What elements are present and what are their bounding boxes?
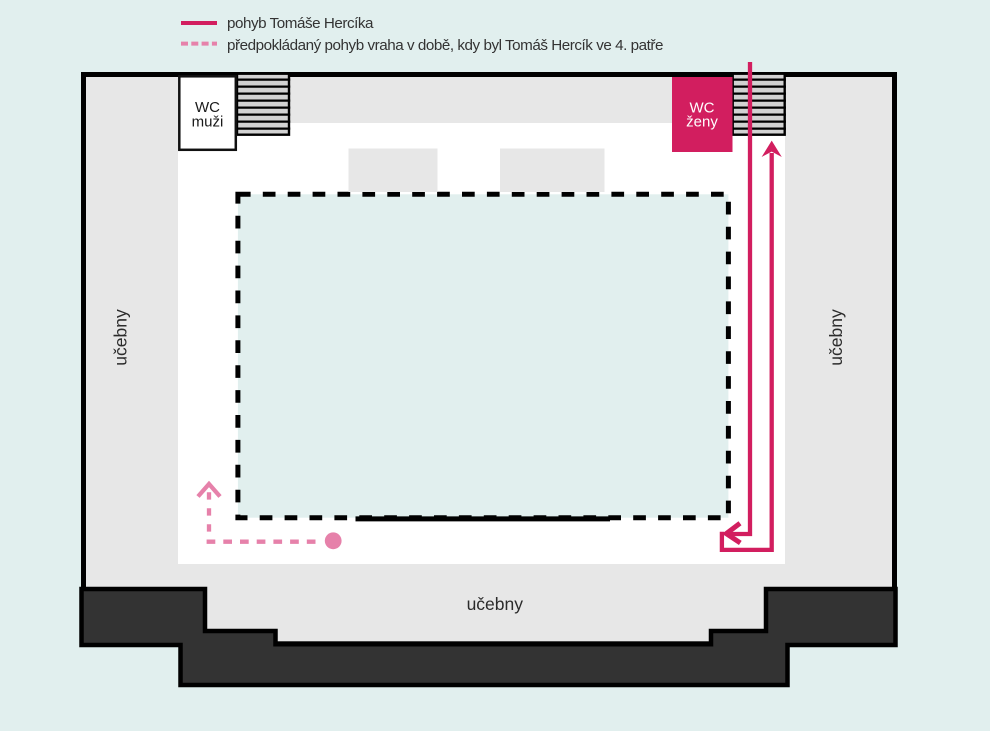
svg-text:pohyb Tomáše Hercíka: pohyb Tomáše Hercíka <box>227 15 374 32</box>
svg-text:učebny: učebny <box>467 594 524 614</box>
svg-text:ženy: ženy <box>686 114 718 131</box>
svg-text:předpokládaný pohyb vraha v do: předpokládaný pohyb vraha v době, kdy by… <box>227 37 663 54</box>
svg-text:učebny: učebny <box>111 309 131 366</box>
svg-text:muži: muži <box>192 114 224 131</box>
svg-text:učebny: učebny <box>826 309 846 366</box>
